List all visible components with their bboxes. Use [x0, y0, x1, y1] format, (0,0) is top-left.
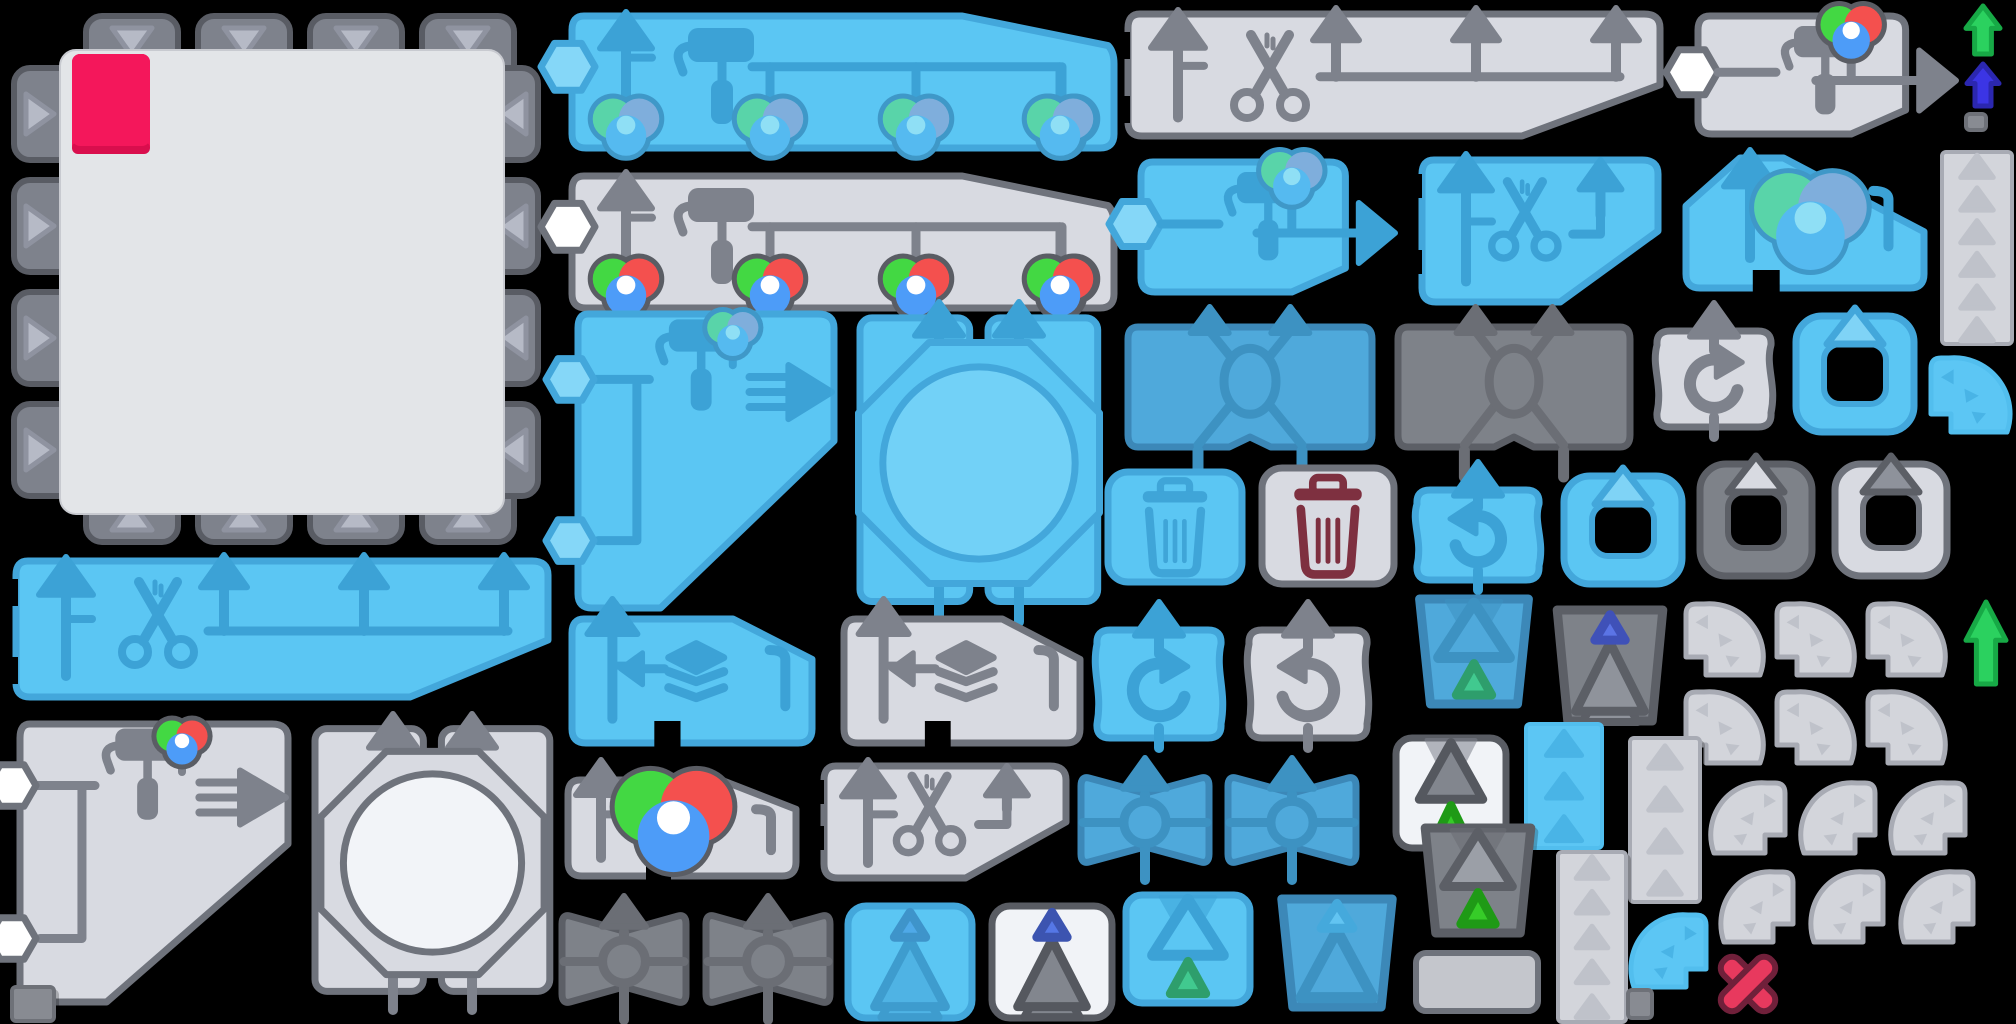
- delete-x-mark-art: [1717, 950, 1779, 1018]
- redo-curvy-blue-art: [1088, 600, 1230, 750]
- spray-all-bar-blue-art: [562, 6, 1118, 158]
- fan-5: [1769, 684, 1857, 769]
- fan-11-art: [1808, 864, 1891, 948]
- paint-output-wide-gray-art: [1688, 6, 1960, 144]
- pixel-square-b: [1626, 988, 1654, 1020]
- fan-1-art: [1678, 596, 1766, 681]
- tri-column-right-art: [1940, 150, 2014, 346]
- fan-1: [1678, 596, 1766, 681]
- cross-swap-blue: [1120, 303, 1380, 481]
- frame-blue-b-art: [1556, 460, 1690, 592]
- tri-column-a: [1628, 736, 1702, 904]
- cut-all-bar-gray: [1120, 6, 1668, 142]
- bowtie-blue-a: [1075, 758, 1215, 882]
- paint-output-blue-art: [1131, 152, 1399, 302]
- frame-dark-art: [1692, 448, 1820, 584]
- octagon-press-blue-art: [850, 300, 1108, 626]
- spray-all-bar-blue: [562, 6, 1118, 158]
- layers-pick-gray: [832, 597, 1090, 753]
- trapezoid-blue: [1268, 891, 1406, 1015]
- pixel-square-a-art: [1964, 112, 1988, 132]
- fan-10-art: [1718, 864, 1801, 948]
- cut-all-bar-blue-art: [8, 553, 556, 703]
- frame-blue-b: [1556, 460, 1690, 592]
- layers-pick-blue: [560, 597, 822, 753]
- cut-shape-blue-art: [1414, 152, 1666, 310]
- fan-blue-top: [1923, 350, 2013, 438]
- trapezoid-dark-green-art: [1412, 820, 1544, 941]
- bowtie-blue-b: [1222, 758, 1362, 882]
- undo-curvy-gray: [1240, 600, 1376, 750]
- bucket-lightblue: [1120, 887, 1256, 1011]
- layers-pick-blue-art: [560, 597, 822, 753]
- undo-shape-blue-art: [1408, 460, 1548, 592]
- fan-3-art: [1860, 596, 1948, 681]
- fan-6: [1860, 684, 1948, 769]
- trapezoid-dark-green: [1412, 820, 1544, 941]
- spray-all-bar-gray-art: [562, 166, 1118, 318]
- fan-blue-bottom-art: [1628, 907, 1714, 993]
- bowtie-blue-a-art: [1075, 758, 1215, 882]
- bucket-blue-art: [1406, 591, 1542, 712]
- pixel-square-a: [1964, 112, 1988, 132]
- upgrade-arrow-green-bottom-art: [1962, 598, 2010, 688]
- fan-2-art: [1769, 596, 1857, 681]
- plain-rect-gray: [1412, 949, 1542, 1015]
- fan-2: [1769, 596, 1857, 681]
- plain-rect-gray-art: [1412, 949, 1542, 1015]
- undo-curvy-gray-art: [1240, 600, 1376, 750]
- trash-maroon-art: [1254, 458, 1402, 594]
- octagon-press-gray-art: [305, 712, 560, 1014]
- ball-shape-blue: [1676, 150, 1932, 296]
- pixel-square-c-art: [10, 985, 56, 1023]
- bucket-blue: [1406, 591, 1542, 712]
- diag-paint-blue: [566, 302, 844, 618]
- tri-column-a-art: [1628, 736, 1702, 904]
- frame-blue-a: [1788, 300, 1922, 440]
- scissors-diag-gray: [816, 758, 1074, 886]
- paint-output-wide-gray: [1688, 6, 1960, 144]
- bowtie-dark-a: [556, 896, 692, 1022]
- trapezoid-dark-indigo: [1544, 602, 1676, 729]
- upgrade-arrow-green-top-art: [1962, 2, 2004, 58]
- frame-light: [1827, 448, 1955, 584]
- bowtie-blue-b-art: [1222, 758, 1362, 882]
- tri-column-right: [1940, 150, 2014, 346]
- trapezoid-dark-indigo-art: [1544, 602, 1676, 729]
- redo-curvy-blue: [1088, 600, 1230, 750]
- fan-blue-top-art: [1923, 350, 2013, 438]
- fan-5-art: [1769, 684, 1857, 769]
- fan-3: [1860, 596, 1948, 681]
- fan-12: [1898, 864, 1981, 948]
- paint-output-blue: [1131, 152, 1399, 302]
- cut-all-bar-gray-art: [1120, 6, 1668, 142]
- fan-12-art: [1898, 864, 1981, 948]
- upgrade-arrow-green-bottom: [1962, 598, 2010, 688]
- colorwheel-gray: [556, 758, 806, 886]
- diag-paint-gray-art: [8, 712, 298, 1012]
- delete-x-mark: [1717, 950, 1779, 1018]
- fan-7: [1708, 775, 1793, 859]
- fan-8: [1798, 775, 1883, 859]
- cut-all-bar-blue: [8, 553, 556, 703]
- canvas-socket-tile: [8, 8, 544, 548]
- trash-maroon: [1254, 458, 1402, 594]
- undo-shape-blue: [1408, 460, 1548, 592]
- cross-swap-dark-art: [1390, 303, 1638, 481]
- canvas-socket-tile-art: [8, 8, 544, 548]
- upgrade-arrow-indigo-art: [1963, 60, 2003, 110]
- tree-square-white: [986, 900, 1118, 1024]
- fan-9-art: [1888, 775, 1973, 859]
- bowtie-dark-a-art: [556, 896, 692, 1022]
- ball-shape-blue-art: [1676, 150, 1932, 296]
- trash-blue: [1100, 462, 1250, 592]
- diag-paint-blue-art: [566, 302, 844, 618]
- fan-blue-bottom: [1628, 907, 1714, 993]
- trash-blue-art: [1100, 462, 1250, 592]
- diag-paint-gray: [8, 712, 298, 1012]
- sprite-atlas: [0, 0, 2016, 1024]
- trapezoid-blue-art: [1268, 891, 1406, 1015]
- colorwheel-gray-art: [556, 758, 806, 886]
- spray-all-bar-gray: [562, 166, 1118, 318]
- octagon-press-gray: [305, 712, 560, 1014]
- tri-column-b: [1556, 850, 1628, 1024]
- cross-swap-blue-art: [1120, 303, 1380, 481]
- tree-square-white-art: [986, 900, 1118, 1024]
- redo-shape-gray-art: [1648, 301, 1780, 439]
- bucket-lightblue-art: [1120, 887, 1256, 1011]
- redo-shape-gray: [1648, 301, 1780, 439]
- frame-light-art: [1827, 448, 1955, 584]
- bowtie-dark-b-art: [700, 896, 836, 1022]
- fan-11: [1808, 864, 1891, 948]
- layers-pick-gray-art: [832, 597, 1090, 753]
- upgrade-arrow-indigo: [1963, 60, 2003, 110]
- fan-7-art: [1708, 775, 1793, 859]
- fan-8-art: [1798, 775, 1883, 859]
- cross-swap-dark: [1390, 303, 1638, 481]
- pixel-square-b-art: [1626, 988, 1654, 1020]
- frame-blue-a-art: [1788, 300, 1922, 440]
- tri-column-b-art: [1556, 850, 1628, 1024]
- tree-square-blue-art: [842, 900, 978, 1024]
- fan-6-art: [1860, 684, 1948, 769]
- fan-9: [1888, 775, 1973, 859]
- octagon-press-blue: [850, 300, 1108, 626]
- bowtie-dark-b: [700, 896, 836, 1022]
- scissors-diag-gray-art: [816, 758, 1074, 886]
- tree-square-blue: [842, 900, 978, 1024]
- frame-dark: [1692, 448, 1820, 584]
- fan-10: [1718, 864, 1801, 948]
- pixel-square-c: [10, 985, 56, 1023]
- upgrade-arrow-green-top: [1962, 2, 2004, 58]
- cut-shape-blue: [1414, 152, 1666, 310]
